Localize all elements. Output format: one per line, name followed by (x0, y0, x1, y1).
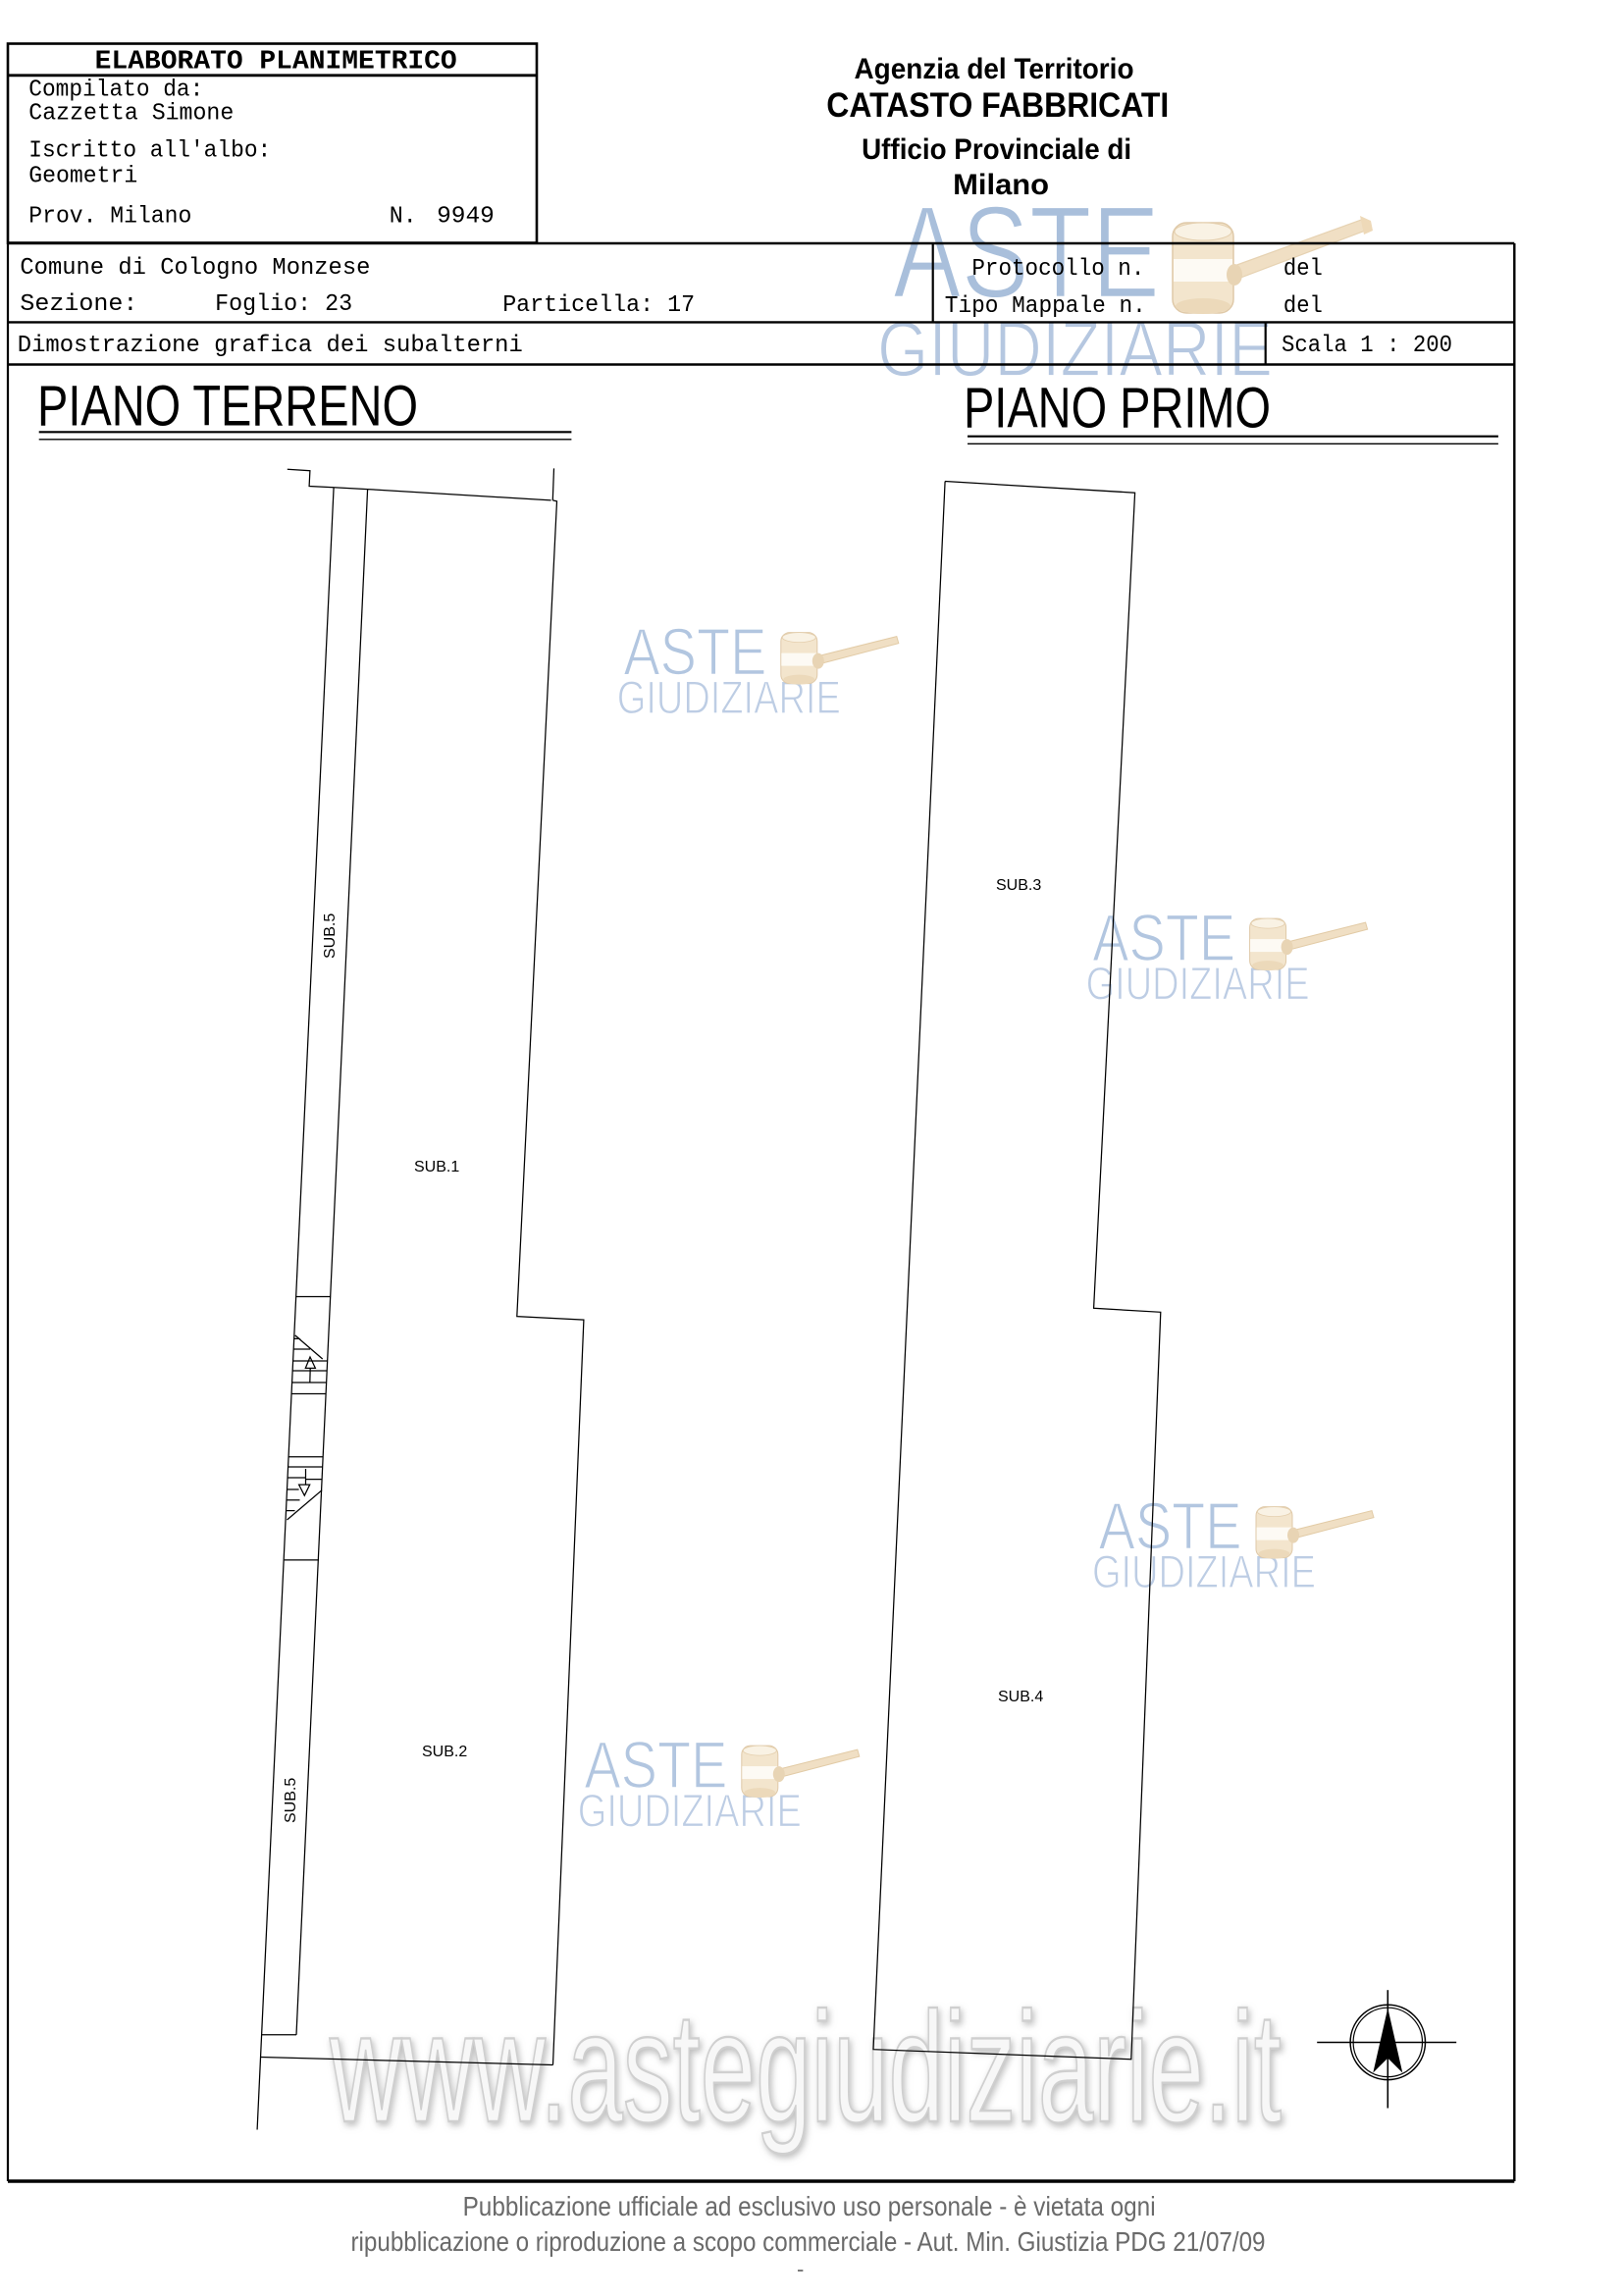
svg-text:SUB.3: SUB.3 (996, 877, 1041, 894)
svg-text:SUB.2: SUB.2 (422, 1744, 467, 1760)
svg-text:-: - (797, 2257, 804, 2281)
svg-text:Sezione:: Sezione: (20, 291, 137, 318)
svg-text:SUB.4: SUB.4 (998, 1689, 1043, 1705)
svg-text:Protocollo n.: Protocollo n. (971, 256, 1144, 283)
svg-text:Foglio: 23: Foglio: 23 (215, 291, 352, 318)
svg-text:Milano: Milano (953, 169, 1049, 201)
svg-text:ripubblicazione o riproduzione: ripubblicazione o riproduzione a scopo c… (351, 2226, 1266, 2257)
svg-text:Tipo Mappale n.: Tipo Mappale n. (945, 293, 1146, 320)
svg-text:SUB.5: SUB.5 (283, 1778, 299, 1823)
svg-text:Prov. Milano: Prov. Milano (28, 204, 191, 231)
svg-text:CATASTO FABBRICATI: CATASTO FABBRICATI (826, 86, 1169, 125)
svg-text:Ufficio Provinciale di: Ufficio Provinciale di (862, 133, 1131, 166)
svg-text:PIANO PRIMO: PIANO PRIMO (964, 377, 1271, 441)
svg-text:Cazzetta Simone: Cazzetta Simone (28, 100, 234, 127)
svg-text:Comune di Cologno Monzese: Comune di Cologno Monzese (20, 255, 370, 282)
svg-text:Pubblicazione ufficiale ad esc: Pubblicazione ufficiale ad esclusivo uso… (463, 2191, 1156, 2221)
svg-text:SUB.1: SUB.1 (414, 1159, 459, 1175)
svg-text:Agenzia del Territorio: Agenzia del Territorio (855, 53, 1134, 85)
svg-text:PIANO TERRENO: PIANO TERRENO (37, 375, 418, 439)
svg-text:del: del (1283, 293, 1323, 320)
svg-text:ELABORATO PLANIMETRICO: ELABORATO PLANIMETRICO (95, 48, 457, 78)
svg-text:9949: 9949 (437, 204, 495, 231)
svg-text:del: del (1283, 256, 1323, 283)
svg-text:Scala 1 : 200: Scala 1 : 200 (1282, 333, 1452, 359)
svg-text:Particella: 17: Particella: 17 (502, 292, 695, 319)
svg-text:N.: N. (390, 204, 417, 231)
svg-text:Geometri: Geometri (28, 163, 137, 189)
svg-text:Dimostrazione grafica dei suba: Dimostrazione grafica dei subalterni (18, 333, 523, 359)
svg-text:SUB.5: SUB.5 (322, 913, 339, 959)
svg-text:www.astegiudiziarie.it: www.astegiudiziarie.it (329, 1979, 1282, 2155)
svg-text:Compilato da:: Compilato da: (28, 77, 203, 103)
svg-text:Iscritto all'albo:: Iscritto all'albo: (28, 137, 271, 164)
